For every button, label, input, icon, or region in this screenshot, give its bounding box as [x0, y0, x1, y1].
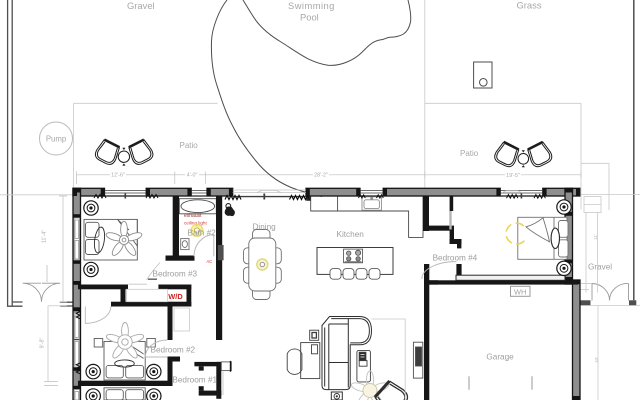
svg-text:10': 10' — [594, 357, 599, 363]
svg-text:Bedroom #2: Bedroom #2 — [151, 346, 196, 355]
svg-text:exhaust: exhaust — [184, 213, 202, 219]
svg-text:28'-2": 28'-2" — [314, 172, 328, 178]
svg-text:Pump: Pump — [46, 134, 67, 143]
svg-text:12'-6": 12'-6" — [111, 172, 125, 178]
svg-text:11': 11' — [593, 234, 598, 240]
svg-text:Gravel: Gravel — [127, 0, 155, 11]
svg-text:Bedroom #3: Bedroom #3 — [153, 269, 198, 278]
svg-text:Garage: Garage — [486, 353, 514, 362]
svg-text:Swimming: Swimming — [288, 0, 335, 11]
svg-text:W/D: W/D — [168, 292, 183, 301]
svg-text:Pool: Pool — [300, 11, 319, 22]
svg-text:Bedroom #4: Bedroom #4 — [433, 253, 478, 262]
svg-text:Bath #2: Bath #2 — [188, 229, 217, 238]
svg-text:Bedroom #1: Bedroom #1 — [172, 375, 217, 384]
svg-text:WH: WH — [514, 288, 526, 297]
svg-text:9'-8": 9'-8" — [40, 338, 46, 349]
svg-text:11'-4": 11'-4" — [42, 230, 48, 243]
svg-text:Dining: Dining — [253, 223, 277, 232]
svg-text:Patio: Patio — [460, 149, 479, 158]
svg-text:Patio: Patio — [180, 141, 199, 150]
svg-text:4'-0": 4'-0" — [187, 172, 198, 178]
svg-text:Gravel: Gravel — [588, 262, 612, 271]
svg-text:Kitchen: Kitchen — [337, 230, 365, 239]
svg-text:AC: AC — [207, 259, 213, 264]
svg-text:19'-5": 19'-5" — [506, 173, 520, 179]
svg-text:Grass: Grass — [517, 0, 542, 11]
